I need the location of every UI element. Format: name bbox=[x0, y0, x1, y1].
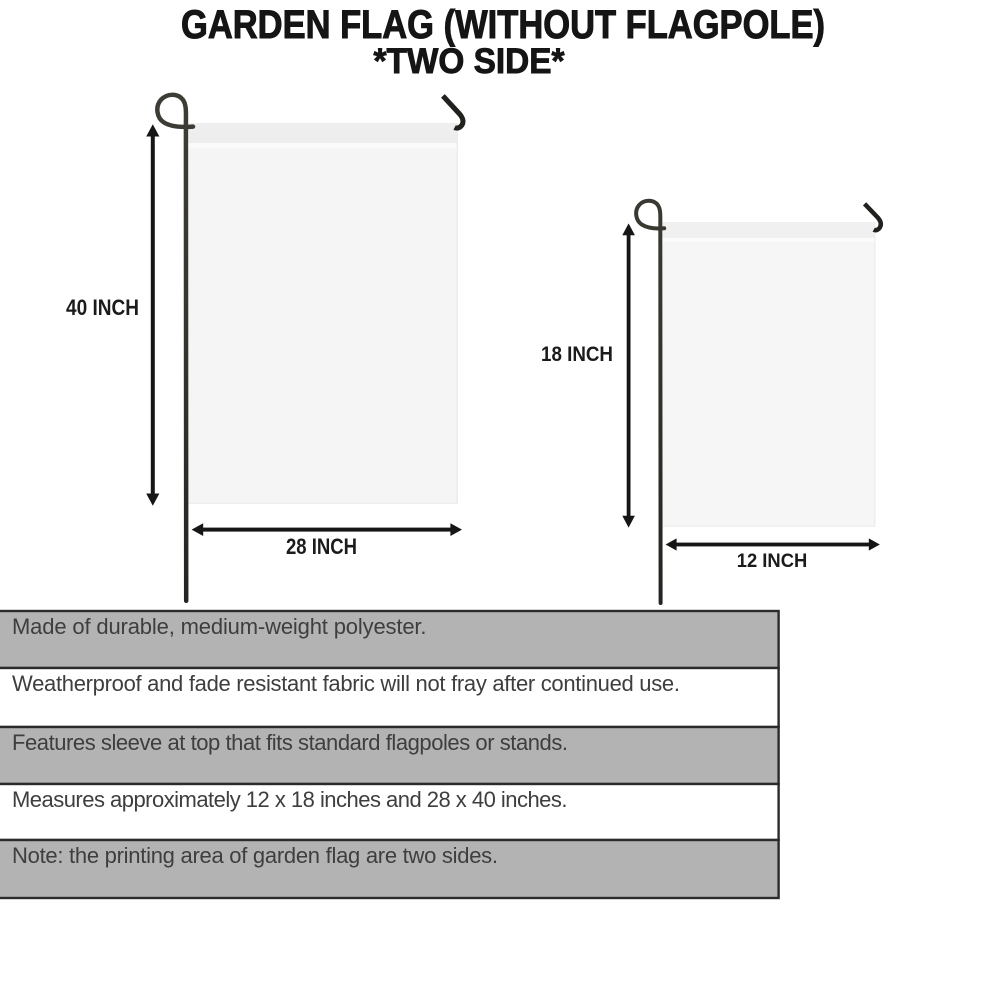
svg-text:*TWO SIDE*: *TWO SIDE* bbox=[374, 42, 565, 81]
svg-text:Made of durable, medium-weight: Made of durable, medium-weight polyester… bbox=[12, 614, 427, 639]
svg-text:28 INCH: 28 INCH bbox=[286, 534, 357, 559]
svg-text:GARDEN FLAG (WITHOUT FLAGPOLE): GARDEN FLAG (WITHOUT FLAGPOLE) bbox=[181, 3, 825, 47]
svg-text:Features sleeve at top that fi: Features sleeve at top that fits standar… bbox=[12, 730, 568, 755]
svg-text:Measures approximately 12 x 18: Measures approximately 12 x 18 inches an… bbox=[12, 787, 568, 812]
svg-text:12 INCH: 12 INCH bbox=[737, 550, 808, 572]
svg-text:40 INCH: 40 INCH bbox=[66, 295, 139, 320]
svg-text:18 INCH: 18 INCH bbox=[541, 342, 613, 366]
svg-text:Note: the printing area of gar: Note: the printing area of garden flag a… bbox=[12, 843, 498, 868]
svg-text:Weatherproof and fade resistan: Weatherproof and fade resistant fabric w… bbox=[12, 671, 680, 696]
